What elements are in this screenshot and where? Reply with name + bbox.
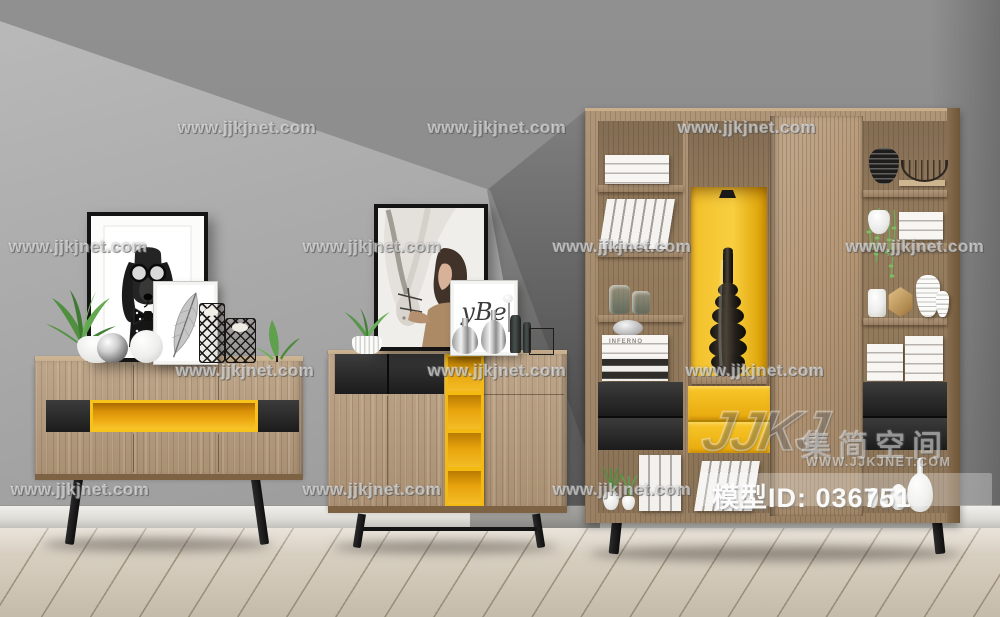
round-vase — [890, 484, 907, 510]
floor-shadow-middle — [332, 541, 557, 553]
glass-jar — [632, 291, 650, 314]
glass-jar — [609, 285, 630, 314]
leaning-books — [694, 461, 760, 511]
book-stack — [605, 155, 669, 184]
small-plant — [256, 312, 302, 362]
lattice-candle-holder — [225, 318, 256, 363]
white-cylinder-pot — [868, 289, 886, 317]
bookshelf-black-drawer — [863, 382, 947, 416]
middle-cabinet-yellow-shelf-column — [445, 354, 484, 507]
book-stack — [867, 344, 903, 381]
right-bookshelf: INFERNO — [585, 108, 960, 523]
ribbed-plant-pot — [352, 336, 382, 354]
flower-head — [503, 294, 513, 303]
lattice-candle-holder — [199, 303, 225, 363]
white-sphere — [130, 330, 163, 363]
dark-book-stack — [602, 359, 668, 381]
teardrop-vase — [907, 458, 933, 512]
potted-plant-leaves — [340, 306, 394, 340]
book-spine-text: INFERNO — [609, 339, 643, 345]
chrome-sphere — [97, 333, 128, 363]
sliding-door — [770, 116, 863, 516]
left-sideboard — [35, 356, 303, 482]
glass-bottle — [510, 315, 521, 353]
book-stack — [905, 336, 943, 381]
bookshelf-black-drawer — [598, 382, 683, 416]
left-cabinet-black-panel — [46, 400, 90, 432]
middle-cabinet-black-drawer — [335, 354, 387, 394]
bookshelf-black-drawer — [863, 418, 947, 450]
silver-canister — [613, 320, 643, 336]
wire-stand — [529, 328, 554, 355]
chrome-vase — [481, 310, 506, 354]
left-cabinet-black-panel — [258, 400, 299, 432]
bookshelf-yellow-drawer — [688, 386, 770, 420]
middle-cabinet-black-drawer — [388, 354, 444, 394]
render-scene: yBe INFERNO — [0, 0, 1000, 617]
bud-vase — [880, 495, 888, 508]
dark-gourd-vase — [707, 246, 749, 378]
middle-cabinet-stretcher — [362, 527, 537, 531]
chrome-vase — [452, 318, 478, 354]
left-cabinet-yellow-niche — [90, 400, 258, 432]
book-stack — [899, 212, 943, 240]
middle-sideboard — [328, 350, 567, 515]
floor-shadow-right — [590, 546, 960, 561]
floor-shadow-left — [42, 538, 272, 551]
bookshelf-black-drawer — [598, 418, 683, 450]
binder-books — [639, 455, 681, 511]
bookshelf-yellow-drawer — [688, 422, 770, 453]
small-plant — [619, 474, 641, 496]
leaning-books — [599, 199, 675, 249]
